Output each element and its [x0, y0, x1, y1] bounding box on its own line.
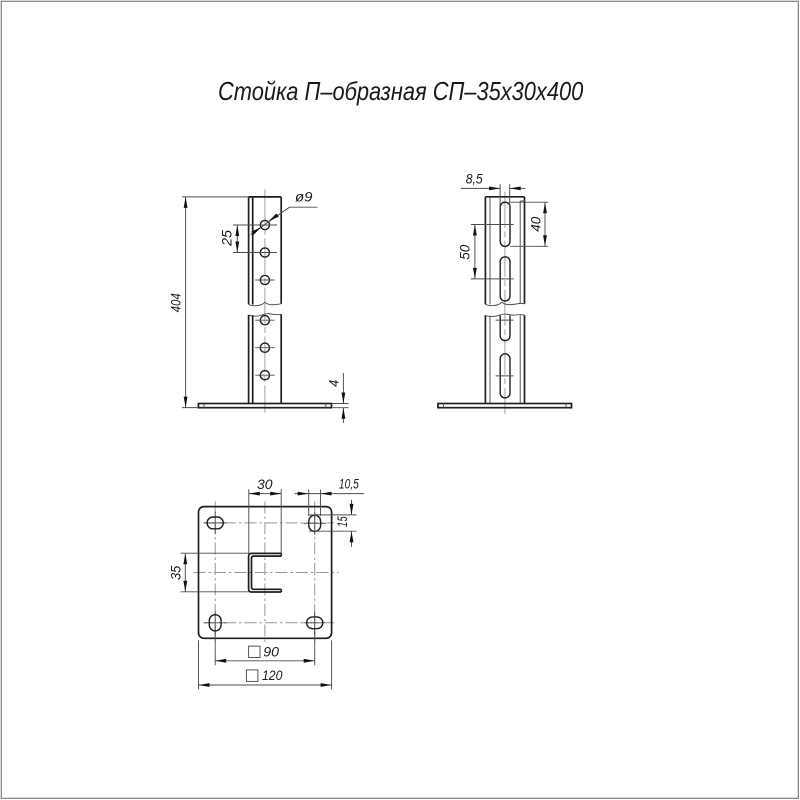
- svg-text:35: 35: [168, 565, 183, 580]
- svg-text:10,5: 10,5: [339, 477, 359, 492]
- svg-text:4: 4: [327, 380, 342, 387]
- svg-text:50: 50: [457, 244, 472, 259]
- svg-text:8,5: 8,5: [466, 171, 483, 186]
- svg-text:25: 25: [219, 230, 234, 247]
- svg-text:15: 15: [335, 516, 350, 527]
- svg-text:120: 120: [262, 668, 283, 683]
- svg-text:90: 90: [263, 644, 279, 659]
- svg-text:30: 30: [257, 477, 273, 492]
- svg-text:Стойка П–образная СП–35х30х400: Стойка П–образная СП–35х30х400: [218, 77, 584, 106]
- svg-text:40: 40: [529, 216, 544, 231]
- svg-text:ø9: ø9: [295, 190, 313, 205]
- svg-text:404: 404: [168, 293, 183, 312]
